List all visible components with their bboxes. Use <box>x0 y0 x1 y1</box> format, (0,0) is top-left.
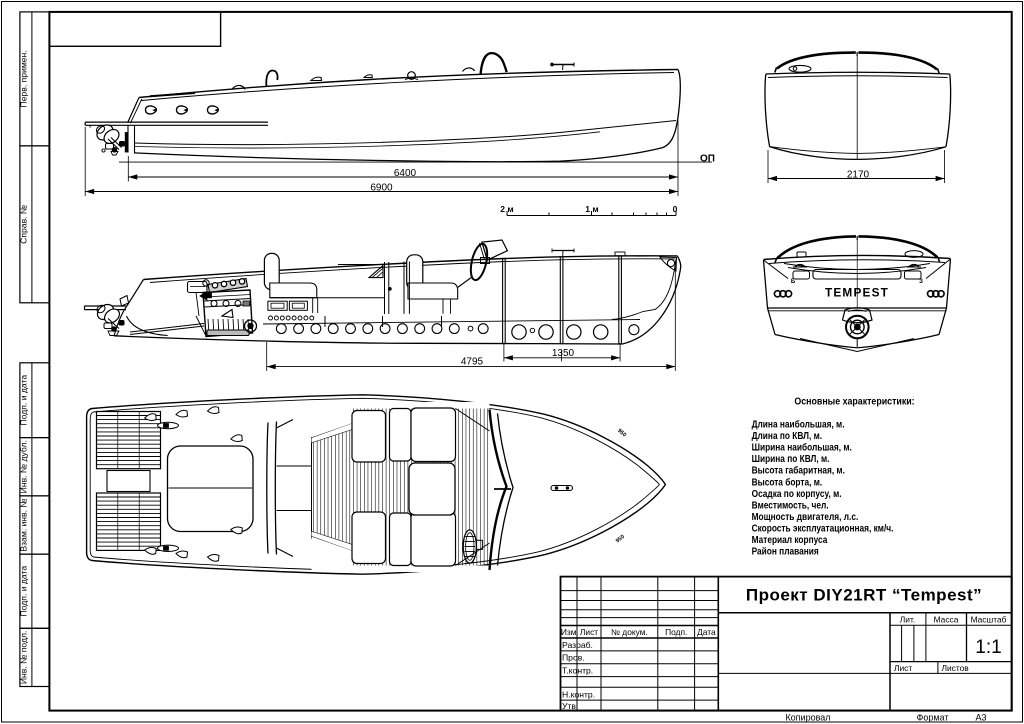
svg-text:Мощность двигателя, л.с.: Мощность двигателя, л.с. <box>752 511 859 522</box>
svg-text:Длина по КВЛ, м.: Длина по КВЛ, м. <box>752 430 822 441</box>
svg-text:Длина наибольшая, м.: Длина наибольшая, м. <box>752 419 845 430</box>
svg-text:Дата: Дата <box>697 627 716 637</box>
svg-text:Инв. № дубл.: Инв. № дубл. <box>19 440 29 493</box>
svg-text:Вместимость, чел.: Вместимость, чел. <box>752 500 829 511</box>
svg-text:Формат: Формат <box>917 712 949 722</box>
svg-text:1350: 1350 <box>552 348 575 359</box>
svg-text:Ширина по КВЛ, м.: Ширина по КВЛ, м. <box>752 454 830 465</box>
svg-text:2170: 2170 <box>847 170 870 181</box>
svg-text:Изм: Изм <box>561 627 577 637</box>
svg-text:Лист: Лист <box>894 663 912 673</box>
svg-text:Взам. инв. №: Взам. инв. № <box>19 498 29 551</box>
svg-text:Разраб.: Разраб. <box>562 640 593 650</box>
svg-text:Лист: Лист <box>580 627 598 637</box>
svg-text:6900: 6900 <box>370 183 393 194</box>
svg-text:Подп.: Подп. <box>665 627 687 637</box>
svg-text:Проект DIY21RT “Tempest”: Проект DIY21RT “Tempest” <box>746 586 982 605</box>
svg-text:Подп. и дата: Подп. и дата <box>19 375 29 426</box>
svg-text:Перв. примен.: Перв. примен. <box>19 50 29 107</box>
svg-text:Копировал: Копировал <box>785 712 830 722</box>
svg-text:Инв. № подл.: Инв. № подл. <box>19 631 29 685</box>
svg-text:Высота габаритная, м.: Высота габаритная, м. <box>752 465 845 476</box>
svg-text:Листов: Листов <box>942 663 970 673</box>
svg-text:0: 0 <box>673 204 678 214</box>
svg-text:TEMPEST: TEMPEST <box>825 286 889 300</box>
svg-text:Масса: Масса <box>934 615 959 625</box>
svg-text:Подп. и дата: Подп. и дата <box>19 566 29 617</box>
svg-text:ОП: ОП <box>700 154 715 165</box>
svg-text:6400: 6400 <box>394 168 417 179</box>
svg-text:Б: Б <box>791 279 796 285</box>
svg-text:4795: 4795 <box>461 357 484 368</box>
svg-text:Высота борта, м.: Высота борта, м. <box>752 477 823 488</box>
svg-text:Осадка по корпусу, м.: Осадка по корпусу, м. <box>752 488 842 499</box>
svg-text:Н.контр.: Н.контр. <box>562 690 595 700</box>
svg-text:№ докум.: № докум. <box>611 627 648 637</box>
svg-text:Основные характеристики:: Основные характеристики: <box>794 396 914 408</box>
svg-text:З: З <box>919 279 923 285</box>
svg-text:Материал корпуса: Материал корпуса <box>752 534 829 545</box>
svg-text:2 м: 2 м <box>500 204 513 214</box>
svg-text:Утв.: Утв. <box>562 701 578 711</box>
svg-text:Район плавания: Район плавания <box>752 546 819 557</box>
svg-text:Т.контр.: Т.контр. <box>562 666 593 676</box>
svg-text:Лит.: Лит. <box>900 615 915 625</box>
svg-text:Ширина наибольшая, м.: Ширина наибольшая, м. <box>752 442 852 453</box>
svg-text:1 м: 1 м <box>585 204 598 214</box>
svg-text:Скорость эксплуатационная, км/: Скорость эксплуатационная, км/ч. <box>752 523 894 534</box>
svg-text:Справ. №: Справ. № <box>19 205 29 244</box>
svg-text:А3: А3 <box>975 712 986 722</box>
svg-text:1:1: 1:1 <box>975 637 1001 658</box>
svg-text:Пров.: Пров. <box>562 653 585 663</box>
svg-text:Масштаб: Масштаб <box>971 615 1007 625</box>
